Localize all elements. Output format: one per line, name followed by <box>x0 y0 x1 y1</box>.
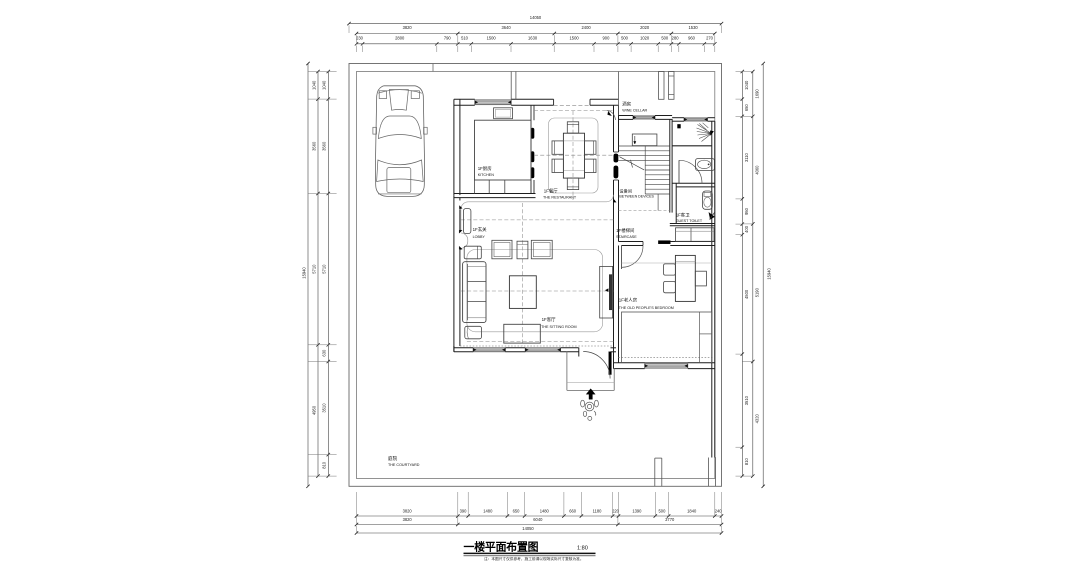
svg-text:2020: 2020 <box>640 25 650 30</box>
svg-text:庭院: 庭院 <box>388 455 398 462</box>
svg-text:THE COURTYARD: THE COURTYARD <box>388 463 420 467</box>
svg-text:900: 900 <box>603 36 611 41</box>
svg-text:3560: 3560 <box>311 141 316 151</box>
svg-text:1F客卫: 1F客卫 <box>676 211 691 218</box>
svg-text:660: 660 <box>569 509 577 514</box>
svg-text:THE OLD PEOPLE'S BEDROOM: THE OLD PEOPLE'S BEDROOM <box>619 306 674 310</box>
svg-text:950: 950 <box>744 207 749 215</box>
svg-text:1F玄关: 1F玄关 <box>473 226 488 233</box>
svg-text:4950: 4950 <box>311 405 316 415</box>
svg-text:650: 650 <box>744 104 749 112</box>
svg-text:1040: 1040 <box>311 80 316 90</box>
svg-text:400: 400 <box>744 225 749 233</box>
svg-text:1480: 1480 <box>483 509 493 514</box>
svg-text:810: 810 <box>322 461 327 469</box>
svg-text:5190: 5190 <box>754 287 759 297</box>
svg-text:THE RESTAURANT: THE RESTAURANT <box>543 196 577 200</box>
svg-text:一楼平面布置图: 一楼平面布置图 <box>464 540 539 554</box>
svg-text:1840: 1840 <box>687 509 697 514</box>
svg-text:4500: 4500 <box>744 289 749 299</box>
svg-text:GUEST TOILET: GUEST TOILET <box>676 219 703 223</box>
svg-text:240: 240 <box>715 509 723 514</box>
svg-text:1F老人房: 1F老人房 <box>619 296 638 303</box>
svg-text:230: 230 <box>356 36 364 41</box>
svg-text:960: 960 <box>688 36 696 41</box>
svg-text:3510: 3510 <box>744 395 749 405</box>
svg-text:4060: 4060 <box>754 165 759 175</box>
svg-text:3820: 3820 <box>403 509 413 514</box>
svg-text:810: 810 <box>744 458 749 466</box>
svg-text:6040: 6040 <box>533 517 543 522</box>
svg-text:注：本图尺寸仅供参考，施工前请以现场实际尺寸复核为准。: 注：本图尺寸仅供参考，施工前请以现场实际尺寸复核为准。 <box>484 556 584 561</box>
svg-text:3770: 3770 <box>665 517 675 522</box>
svg-text:650: 650 <box>513 509 521 514</box>
svg-text:1500: 1500 <box>570 36 580 41</box>
svg-text:1040: 1040 <box>322 80 327 90</box>
svg-text:1500: 1500 <box>487 36 497 41</box>
svg-text:500: 500 <box>621 36 629 41</box>
svg-text:2400: 2400 <box>582 25 592 30</box>
svg-text:510: 510 <box>461 36 469 41</box>
svg-text:3640: 3640 <box>501 25 511 30</box>
svg-text:2800: 2800 <box>395 36 405 41</box>
svg-text:酒窖: 酒窖 <box>622 100 631 107</box>
svg-text:500: 500 <box>661 36 669 41</box>
svg-text:THE SITTING ROOM: THE SITTING ROOM <box>541 325 576 329</box>
svg-text:1F厨房: 1F厨房 <box>478 165 493 172</box>
svg-text:1F客厅: 1F客厅 <box>542 316 557 323</box>
svg-text:4320: 4320 <box>754 414 759 424</box>
svg-text:STAIRCASE: STAIRCASE <box>616 235 637 239</box>
svg-text:1690: 1690 <box>754 89 759 99</box>
svg-text:3820: 3820 <box>403 517 413 522</box>
svg-text:390: 390 <box>460 509 468 514</box>
svg-text:14050: 14050 <box>530 15 542 20</box>
svg-text:LOBBY: LOBBY <box>473 235 486 239</box>
svg-text:1180: 1180 <box>593 509 603 514</box>
svg-text:280: 280 <box>672 36 680 41</box>
svg-text:500: 500 <box>659 509 667 514</box>
svg-text:1F楼梯间: 1F楼梯间 <box>616 227 634 234</box>
svg-text:790: 790 <box>444 36 452 41</box>
svg-text:5710: 5710 <box>311 264 316 274</box>
svg-text:WINE CELLAR: WINE CELLAR <box>622 108 647 112</box>
svg-text:3560: 3560 <box>322 141 327 151</box>
svg-text:1:80: 1:80 <box>577 545 588 551</box>
svg-text:270: 270 <box>706 36 714 41</box>
svg-text:3510: 3510 <box>322 403 327 413</box>
svg-text:1F餐厅: 1F餐厅 <box>544 187 559 194</box>
svg-text:1630: 1630 <box>528 36 538 41</box>
svg-text:630: 630 <box>322 349 327 357</box>
svg-text:1480: 1480 <box>540 509 550 514</box>
svg-text:KITCHEN: KITCHEN <box>478 173 495 177</box>
svg-text:BETWEEN DEVICES: BETWEEN DEVICES <box>619 195 654 199</box>
svg-text:5710: 5710 <box>322 264 327 274</box>
svg-text:1020: 1020 <box>640 36 650 41</box>
svg-text:3820: 3820 <box>403 25 413 30</box>
svg-text:3110: 3110 <box>744 152 749 162</box>
svg-text:15940: 15940 <box>301 267 306 279</box>
svg-text:1040: 1040 <box>744 80 749 90</box>
svg-text:15940: 15940 <box>766 267 771 279</box>
svg-text:1390: 1390 <box>632 509 642 514</box>
svg-text:设备间: 设备间 <box>619 187 632 194</box>
svg-text:14050: 14050 <box>522 526 534 531</box>
svg-text:1530: 1530 <box>689 25 699 30</box>
